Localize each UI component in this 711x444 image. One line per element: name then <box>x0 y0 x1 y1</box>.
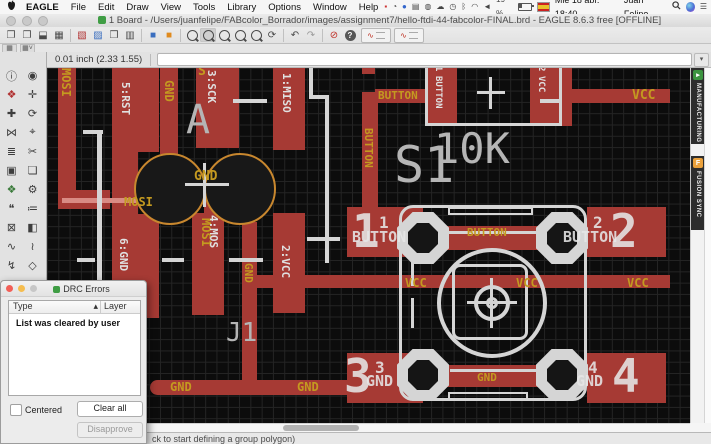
tab-manufacturing[interactable]: ▸ MANUFACTURING <box>691 68 705 144</box>
dialog-minimize-button[interactable] <box>18 285 25 292</box>
sidebar-tool-add-part[interactable]: ❖ <box>1 180 22 199</box>
board-label-4[interactable]: 4 <box>612 353 640 399</box>
volume-icon[interactable]: ◄ <box>483 0 491 14</box>
sidebar-tool-info[interactable]: ⓘ <box>1 66 22 85</box>
fusion-sync-icon: F <box>693 158 703 168</box>
drc-dialog-title: DRC Errors <box>37 284 126 294</box>
main-toolbar: ❐❐⬓▦▧▨❒▥■■⟳↶↷⊘?∿∿ <box>0 27 711 44</box>
board-doc-icon <box>98 16 106 24</box>
keyboard-icon[interactable]: ▤ <box>412 0 420 14</box>
centered-checkbox[interactable] <box>10 404 22 416</box>
sidebar-tool-rotate[interactable]: ⟳ <box>22 104 43 123</box>
board-label-button[interactable]: BUTTON <box>467 227 507 238</box>
time-machine-icon[interactable]: ◔ <box>392 0 397 14</box>
menu-item-tools[interactable]: Tools <box>187 2 221 13</box>
sidebar-tool-delete[interactable]: ▣ <box>1 161 22 180</box>
menu-items: EAGLEFileEditDrawViewToolsLibraryOptions… <box>20 2 384 13</box>
sidebar-tool-cut[interactable]: ✂ <box>22 142 43 161</box>
button-notch <box>448 392 528 400</box>
origin-cross <box>477 91 505 94</box>
sidebar-tool-wire[interactable]: ↯ <box>1 256 22 275</box>
switch-to-schematic-button[interactable]: ■ <box>145 28 161 42</box>
command-history-dropdown[interactable]: ▾ <box>694 53 709 67</box>
toolbar-separator <box>141 29 142 42</box>
silkscreen-line[interactable] <box>77 258 95 262</box>
drc-error-list[interactable]: Type▴ Layer List was cleared by user <box>8 300 141 396</box>
board-label-a[interactable]: A <box>186 100 210 140</box>
zoom-out-button[interactable] <box>216 28 232 42</box>
switch-to-board-button[interactable]: ■ <box>161 28 177 42</box>
layer-settings-button[interactable]: ▧ <box>74 28 90 42</box>
board-label-gnd[interactable]: GND <box>576 374 603 389</box>
apple-menu-icon[interactable] <box>0 0 20 14</box>
toolbar-separator <box>322 29 323 42</box>
sort-ascending-icon: ▴ <box>93 301 98 313</box>
drc-list-message: List was cleared by user <box>9 314 140 328</box>
dropbox-icon[interactable]: ● <box>402 0 407 14</box>
divider <box>150 54 151 66</box>
silkscreen-line[interactable] <box>309 68 313 95</box>
app-indicator-icon[interactable]: ▪ <box>384 0 387 14</box>
tab-fusion-sync[interactable]: F FUSION SYNC <box>691 156 705 230</box>
toolbar-subrow <box>0 44 711 52</box>
menu-item-help[interactable]: Help <box>353 2 385 13</box>
board-label-gnd[interactable]: GND <box>170 381 192 393</box>
help-icon[interactable]: ? <box>342 28 358 42</box>
command-line-input[interactable] <box>157 53 692 66</box>
quick-route-button[interactable]: ∿ <box>394 28 424 43</box>
tool-grid: ⓘ◉❖✛✚⟳⋈⌖≣✂▣❏❖⚙❝≔⊠◧∿≀↯◇ <box>1 66 45 275</box>
window-title: 1 Board - /Users/juanfelipe/FABcolor_Bor… <box>48 15 711 26</box>
menu-item-view[interactable]: View <box>155 2 187 13</box>
drc-doc-icon <box>53 286 60 293</box>
status-message: ck to start defining a group polygon) <box>152 433 295 444</box>
clear-all-button[interactable]: Clear all <box>77 401 143 417</box>
sidebar-tool-copy[interactable]: ❏ <box>22 161 43 180</box>
board-label-vcc[interactable]: VCC <box>516 277 538 289</box>
button-side-pin <box>411 298 414 328</box>
silkscreen-line[interactable] <box>540 99 561 103</box>
board-label-gnd[interactable]: GND <box>163 80 175 102</box>
board-label-2-vcc[interactable]: 2:VCC <box>280 245 291 278</box>
board-label-4-mos[interactable]: 4:MOS <box>208 215 219 248</box>
board-label-2[interactable]: 2 <box>536 68 545 71</box>
board-label-10k[interactable]: 10K <box>434 128 510 170</box>
eagle-screen: EAGLEFileEditDrawViewToolsLibraryOptions… <box>0 0 711 444</box>
clock-icon[interactable]: ◷ <box>449 0 456 14</box>
drill-circle[interactable] <box>134 153 206 225</box>
board-label-gnd[interactable]: GND <box>297 381 319 393</box>
sidebar-tool-settings[interactable]: ⚙ <box>22 180 43 199</box>
macos-menu-bar: EAGLEFileEditDrawViewToolsLibraryOptions… <box>0 0 711 15</box>
zoom-previous-button[interactable] <box>248 28 264 42</box>
cursor-coordinates: 0.01 inch (2.33 1.55) <box>47 54 150 65</box>
board-label-button[interactable]: BUTTON <box>433 76 442 109</box>
zoom-select-button[interactable] <box>232 28 248 42</box>
drc-list-header: Type▴ Layer <box>9 301 140 314</box>
button-notch <box>448 207 533 215</box>
board-label-mosi[interactable]: MOSI <box>124 196 153 208</box>
tab-label: FUSION SYNC <box>695 171 701 218</box>
silkscreen-line[interactable] <box>307 237 340 241</box>
resistor-outline[interactable] <box>425 68 428 126</box>
cam-processor-button[interactable]: ❒ <box>106 28 122 42</box>
board-label-button[interactable]: BUTTON <box>363 128 374 168</box>
sidebar-tool-move[interactable]: ✚ <box>1 104 22 123</box>
board-label-gnd[interactable]: GND <box>366 374 393 389</box>
print-button[interactable]: ▦ <box>51 28 67 42</box>
close-window-button[interactable] <box>6 16 16 26</box>
button-crosshair <box>467 301 517 304</box>
zoom-in-button[interactable] <box>200 28 216 42</box>
silkscreen-line[interactable] <box>97 133 102 281</box>
tab-label: MANUFACTURING <box>695 83 701 143</box>
silkscreen-line[interactable] <box>233 99 267 103</box>
bluetooth-icon[interactable]: ᛒ <box>461 0 466 14</box>
board-label-vcc[interactable]: VCC <box>536 76 545 92</box>
design-manager-button[interactable]: ▥ <box>122 28 138 42</box>
toolbar-separator <box>70 29 71 42</box>
sidebar-tool-change[interactable]: ≣ <box>1 142 22 161</box>
scrollbar-corner <box>690 423 711 432</box>
save-button[interactable]: ⬓ <box>35 28 51 42</box>
scrollbar-thumb[interactable] <box>283 425 359 431</box>
redo-button[interactable]: ↷ <box>303 28 319 42</box>
board-label-5-rst[interactable]: 5:RST <box>120 82 131 115</box>
dialog-zoom-button <box>30 285 37 292</box>
board-label-vcc[interactable]: VCC <box>405 277 427 289</box>
menu-item-edit[interactable]: Edit <box>92 2 120 13</box>
side-tab-strip: ▸ MANUFACTURING F FUSION SYNC <box>690 68 704 423</box>
sidebar-tool-route[interactable]: ∿ <box>1 237 22 256</box>
sidebar-tool-mirror[interactable]: ⋈ <box>1 123 22 142</box>
dialog-close-button[interactable] <box>6 285 13 292</box>
board-label-vcc[interactable]: VCC <box>632 89 655 102</box>
spotlight-icon[interactable] <box>672 1 681 13</box>
manufacturing-icon: ▸ <box>693 70 703 80</box>
silkscreen-line[interactable] <box>229 258 263 262</box>
stop-button[interactable]: ⊘ <box>326 28 342 42</box>
wifi-icon[interactable]: ◠ <box>471 0 478 14</box>
board-label-gnd[interactable]: GND <box>477 372 497 383</box>
keyboard-layout-flag-icon[interactable] <box>537 2 550 12</box>
undo-button[interactable]: ↶ <box>287 28 303 42</box>
sidebar-tool-lock[interactable]: ⊠ <box>1 218 22 237</box>
backup-icon[interactable]: ◍ <box>424 0 431 14</box>
board-label-button[interactable]: BUTTON <box>378 90 418 101</box>
window-title-bar[interactable]: 1 Board - /Users/juanfelipe/FABcolor_Bor… <box>0 14 711 28</box>
board-label-button[interactable]: BUTTON <box>563 230 617 245</box>
copper-trace-gnd[interactable] <box>242 222 257 384</box>
command-bar: 0.01 inch (2.33 1.55) ▾ <box>47 52 711 68</box>
new-window-button[interactable]: ❐ <box>3 28 19 42</box>
notification-center-icon[interactable]: ☰ <box>700 0 707 14</box>
drc-errors-dialog[interactable]: DRC Errors Type▴ Layer List was cleared … <box>0 280 147 444</box>
sidebar-tool-mark[interactable]: ✛ <box>22 85 43 104</box>
menu-item-file[interactable]: File <box>65 2 92 13</box>
route-airwires-button[interactable]: ∿ <box>361 28 391 43</box>
centered-checkbox-label: Centered <box>25 405 62 415</box>
minimize-window-button[interactable] <box>22 16 32 26</box>
board-label-vcc[interactable]: VCC <box>627 277 649 289</box>
column-layer[interactable]: Layer <box>101 301 140 313</box>
battery-icon[interactable] <box>518 3 532 11</box>
drc-dialog-title-bar[interactable]: DRC Errors <box>1 281 146 297</box>
sidebar-tool-display-layers[interactable]: ❖ <box>1 85 22 104</box>
board-label-gnd[interactable]: GND <box>194 170 217 183</box>
vertical-scrollbar[interactable] <box>704 68 711 423</box>
board-label-mosi[interactable]: MOSI <box>60 68 72 97</box>
silkscreen-line[interactable] <box>325 95 329 263</box>
sidebar-tool-polygon[interactable]: ◇ <box>22 256 43 275</box>
board-label-1-miso[interactable]: 1:MISO <box>281 73 292 113</box>
copper-trace-button[interactable] <box>362 68 375 74</box>
menu-item-options[interactable]: Options <box>262 2 307 13</box>
sidebar-tool-ripup[interactable]: ≀ <box>22 237 43 256</box>
disapprove-button[interactable]: Disapprove <box>77 422 143 438</box>
toolbar-separator <box>180 29 181 42</box>
sidebar-tool-smash[interactable]: ◧ <box>22 218 43 237</box>
silkscreen-line[interactable] <box>162 258 184 262</box>
zoom-fit-button[interactable] <box>184 28 200 42</box>
board-label-j1[interactable]: J1 <box>226 320 257 346</box>
image-export-button[interactable]: ▨ <box>90 28 106 42</box>
menu-item-eagle[interactable]: EAGLE <box>20 2 65 13</box>
sidebar-tool-show[interactable]: ◉ <box>22 66 43 85</box>
resistor-outline[interactable] <box>559 68 562 126</box>
menu-item-library[interactable]: Library <box>221 2 262 13</box>
cloud-icon[interactable]: ☁ <box>436 0 444 14</box>
board-label-gnd[interactable]: GND <box>243 263 254 283</box>
open-board-button[interactable]: ❐ <box>19 28 35 42</box>
column-type[interactable]: Type▴ <box>9 301 101 313</box>
board-label-1[interactable]: 1 <box>433 68 442 71</box>
redraw-button[interactable]: ⟳ <box>264 28 280 42</box>
toolbar-separator <box>283 29 284 42</box>
sidebar-tool-value[interactable]: ≔ <box>22 199 43 218</box>
board-label-button[interactable]: BUTTON <box>352 230 406 245</box>
sidebar-tool-name[interactable]: ❝ <box>1 199 22 218</box>
sidebar-tool-group[interactable]: ⌖ <box>22 123 43 142</box>
menu-item-draw[interactable]: Draw <box>120 2 154 13</box>
board-label-6-gnd[interactable]: 6:GND <box>118 238 129 271</box>
menu-item-window[interactable]: Window <box>307 2 353 13</box>
zoom-window-button[interactable] <box>38 16 48 26</box>
siri-icon[interactable] <box>686 2 695 12</box>
